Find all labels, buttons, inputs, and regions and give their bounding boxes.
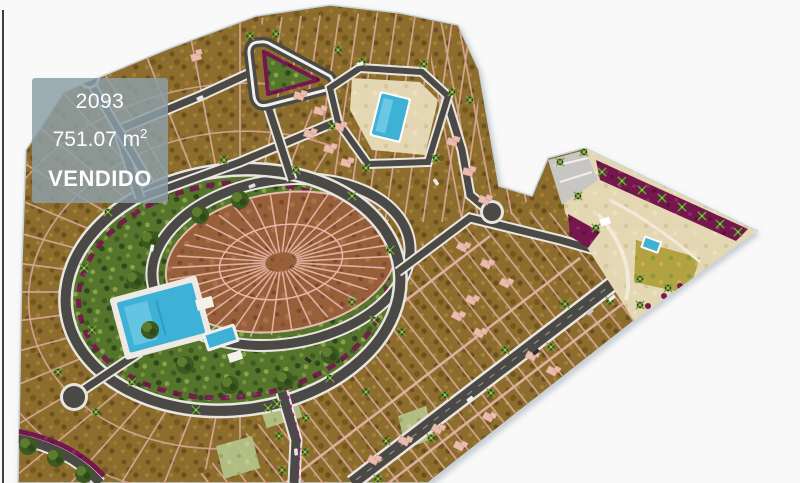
site-plan-viewport: 2093 751.07 m2 VENDIDO — [0, 0, 800, 483]
lot-area: 751.07 m2 — [36, 128, 164, 152]
lot-area-exponent: 2 — [140, 126, 147, 141]
lot-number: 2093 — [36, 90, 164, 114]
lot-status: VENDIDO — [36, 166, 164, 192]
window-edge-line — [2, 10, 4, 483]
lot-area-value: 751.07 m — [53, 128, 141, 151]
lot-info-tooltip: 2093 751.07 m2 VENDIDO — [32, 78, 168, 203]
site-plan-map[interactable] — [0, 0, 800, 483]
